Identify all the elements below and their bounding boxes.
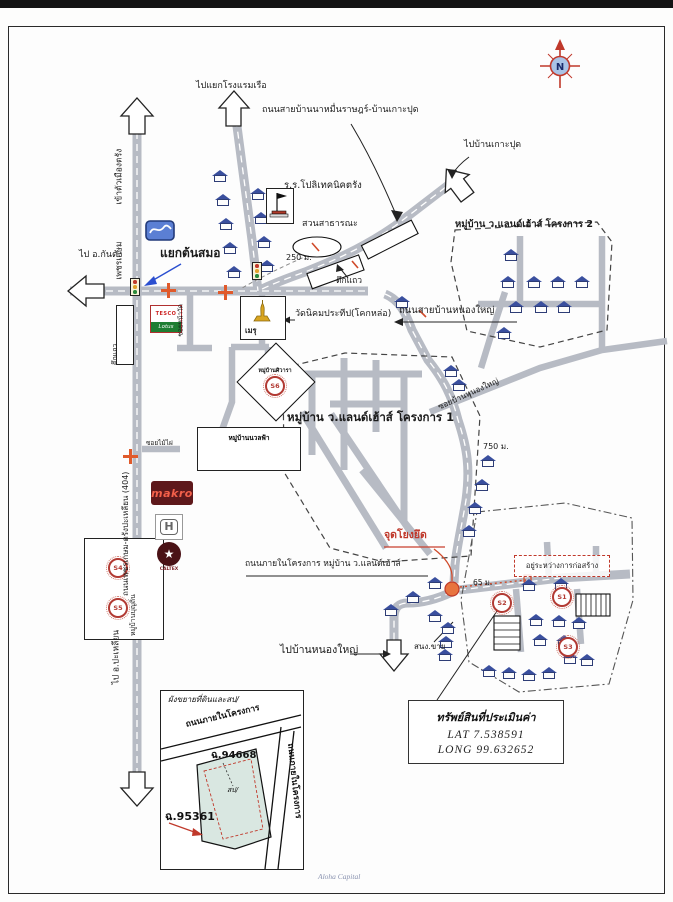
crossing-marker-icon bbox=[123, 449, 138, 464]
school-label: ร.ร.โปลิเทคนิคตรัง bbox=[284, 181, 362, 191]
rowhouses-left-label: ตึกแถว bbox=[112, 344, 119, 365]
dist-750-label: 750 ม. bbox=[483, 443, 509, 451]
house-icon bbox=[215, 194, 231, 206]
roundabout-node bbox=[445, 582, 459, 596]
property-long: LONG 99.632652 bbox=[438, 744, 534, 756]
grid-building-1 bbox=[494, 616, 520, 650]
property-coordinates-box: ทรัพย์สินที่ประเมินค่า LAT 7.538591 LONG… bbox=[408, 700, 564, 764]
shiva-village-content: หมู่บ้านศิวารา S6 bbox=[248, 354, 302, 408]
house-icon bbox=[440, 622, 456, 634]
makro-text: makro bbox=[151, 487, 193, 500]
tonsamo-junction-label: แยกต้นสมอ bbox=[160, 247, 220, 259]
project2-label: หมู่บ้าน ว.แลนด์เฮ้าส์ โครงการ 2 bbox=[455, 220, 593, 230]
house-icon bbox=[496, 327, 512, 339]
to-ban-nongyai-label: ไปบ้านหนองใหญ่ bbox=[280, 645, 358, 656]
house-icon bbox=[480, 455, 496, 467]
phetkasem-label: เพชรเกษม bbox=[116, 241, 125, 279]
sales-office-label: สนง.ขาย bbox=[414, 643, 445, 651]
map-page: N TE bbox=[0, 0, 673, 902]
marker-s5: S5 bbox=[108, 598, 128, 618]
property-title: ทรัพย์สินที่ประเมินค่า bbox=[436, 708, 535, 726]
house-icon bbox=[551, 615, 567, 627]
honda-h-text: H bbox=[160, 519, 177, 535]
house-icon bbox=[550, 276, 566, 288]
compass-rose: N bbox=[533, 36, 587, 94]
to-boat-hotel-label: ไปแยกโรงแรมเรือ bbox=[196, 82, 267, 91]
property-lat: LAT 7.538591 bbox=[447, 729, 524, 741]
road-nongyai-label: ถนนสายบ้านหนองใหญ่ bbox=[399, 306, 494, 316]
under-construction-box: อยู่ระหว่างการก่อสร้าง bbox=[514, 555, 610, 577]
arrow-north-main bbox=[121, 98, 153, 134]
traffic-light-icon bbox=[252, 262, 262, 280]
house-icon bbox=[218, 218, 234, 230]
blue-landmark-logo-icon bbox=[145, 220, 175, 245]
house-icon bbox=[521, 669, 537, 681]
marker-s3: S3 bbox=[558, 637, 578, 657]
nuanfa-village-label: หมู่บ้านนวลฟ้า bbox=[198, 433, 300, 443]
arrow-south-main bbox=[121, 772, 153, 806]
house-icon bbox=[571, 617, 587, 629]
house-icon bbox=[427, 577, 443, 589]
house-icon bbox=[503, 249, 519, 261]
marker-s6: S6 bbox=[265, 376, 285, 396]
meru-label: เมรุ bbox=[245, 327, 257, 335]
house-icon bbox=[556, 301, 572, 313]
house-icon bbox=[541, 667, 557, 679]
house-icon bbox=[532, 634, 548, 646]
road-banna-label: ถนนสายบ้านนาหมื่นราษฎร์-บ้านเกาะปุด bbox=[262, 106, 419, 115]
house-icon bbox=[579, 654, 595, 666]
house-icon bbox=[405, 591, 421, 603]
parcel-a-note: สป/ bbox=[227, 787, 238, 794]
house-icon bbox=[226, 266, 242, 278]
makro-logo: makro bbox=[151, 481, 193, 505]
honda-logo: H bbox=[155, 514, 183, 540]
crossing-marker-icon bbox=[218, 285, 233, 300]
soi-maiphai-label: ซอยไม้ไผ่ bbox=[146, 440, 173, 447]
parcel-b-label: ฉ.95361 bbox=[165, 811, 215, 822]
house-icon bbox=[474, 479, 490, 491]
soi-temple-label: ซอยหน้าวัด bbox=[178, 304, 185, 336]
house-icon bbox=[526, 276, 542, 288]
school-building-icon bbox=[266, 188, 294, 224]
caltex-logo: ★ CALTEX bbox=[157, 542, 181, 572]
parcel-polygon bbox=[197, 749, 271, 849]
temple-label: วัดนิคมประทีป(โคกหล่อ) bbox=[295, 310, 391, 319]
inset-title: ผังขยายที่ดินและสป/ bbox=[168, 696, 239, 704]
marker-s1: S1 bbox=[552, 587, 572, 607]
house-icon bbox=[508, 301, 524, 313]
house-icon bbox=[533, 301, 549, 313]
house-icon bbox=[574, 276, 590, 288]
project1-streets bbox=[296, 358, 430, 554]
house-icon bbox=[501, 667, 517, 679]
dist-250-label: 250 ม. bbox=[286, 254, 312, 262]
house-icon bbox=[500, 276, 516, 288]
house-icon bbox=[250, 188, 266, 200]
house-icon bbox=[222, 242, 238, 254]
house-icon bbox=[461, 525, 477, 537]
scan-edge-bar bbox=[0, 0, 673, 8]
inset-plot-map: ผังขยายที่ดินและสป/ ถนนภายในโครงการ ถนนภ… bbox=[160, 690, 304, 870]
house-icon bbox=[212, 170, 228, 182]
stupa-icon bbox=[251, 299, 273, 323]
compass-north-letter: N bbox=[556, 62, 564, 73]
to-kohpud-label: ไปบ้านเกาะปุด bbox=[464, 141, 521, 150]
marker-s2: S2 bbox=[492, 593, 512, 613]
house-icon bbox=[383, 604, 399, 616]
into-city-label: เข้าตัวเมืองตรัง bbox=[116, 149, 125, 205]
traffic-light-icon bbox=[130, 278, 140, 296]
arrow-ne-kohpud bbox=[434, 160, 479, 206]
dist-65-label: 65 ม. bbox=[473, 579, 492, 587]
temple-box: เมรุ bbox=[240, 296, 286, 340]
burin-village-label: หมู่บ้านบุญถิ่น bbox=[130, 594, 137, 636]
shiva-village-label: หมู่บ้านศิวารา bbox=[258, 367, 291, 375]
house-icon bbox=[443, 365, 459, 377]
arrow-west-kantang bbox=[68, 276, 104, 306]
park-label: สวนสาธารณะ bbox=[302, 220, 358, 229]
caltex-star-icon: ★ bbox=[157, 542, 181, 566]
crossing-marker-icon bbox=[161, 283, 176, 298]
house-icon bbox=[256, 236, 272, 248]
house-icon bbox=[427, 610, 443, 622]
hwy404-label: ถนนเพชรเกษม-ตรังปะเหลียน (404) bbox=[122, 472, 130, 596]
roads-layer bbox=[0, 0, 673, 902]
house-icon bbox=[521, 579, 537, 591]
arrow-north-boathotel bbox=[219, 91, 249, 126]
house-icon bbox=[467, 502, 483, 514]
internal-road-label: ถนนภายในโครงการ หมู่บ้าน ว.แลนด์เฮ้าส์ bbox=[245, 560, 401, 569]
under-construction-label: อยู่ระหว่างการก่อสร้าง bbox=[526, 560, 598, 572]
tie-point-label: จุดโยงยึด bbox=[384, 530, 427, 541]
project1-label: หมู่บ้าน ว.แลนด์เฮ้าส์ โครงการ 1 bbox=[287, 412, 454, 424]
watermark: Aloha Capital bbox=[318, 872, 360, 881]
parcel-a-label: ฉ.94668 bbox=[211, 751, 256, 761]
house-icon bbox=[481, 665, 497, 677]
nuanfa-village-box: หมู่บ้านนวลฟ้า bbox=[197, 427, 301, 471]
house-icon bbox=[528, 614, 544, 626]
to-palian-label: ไป อ.ปะเหลียน bbox=[113, 630, 122, 685]
rowhouses-label: ตึกแถว bbox=[336, 277, 362, 286]
caltex-name: CALTEX bbox=[157, 567, 181, 572]
